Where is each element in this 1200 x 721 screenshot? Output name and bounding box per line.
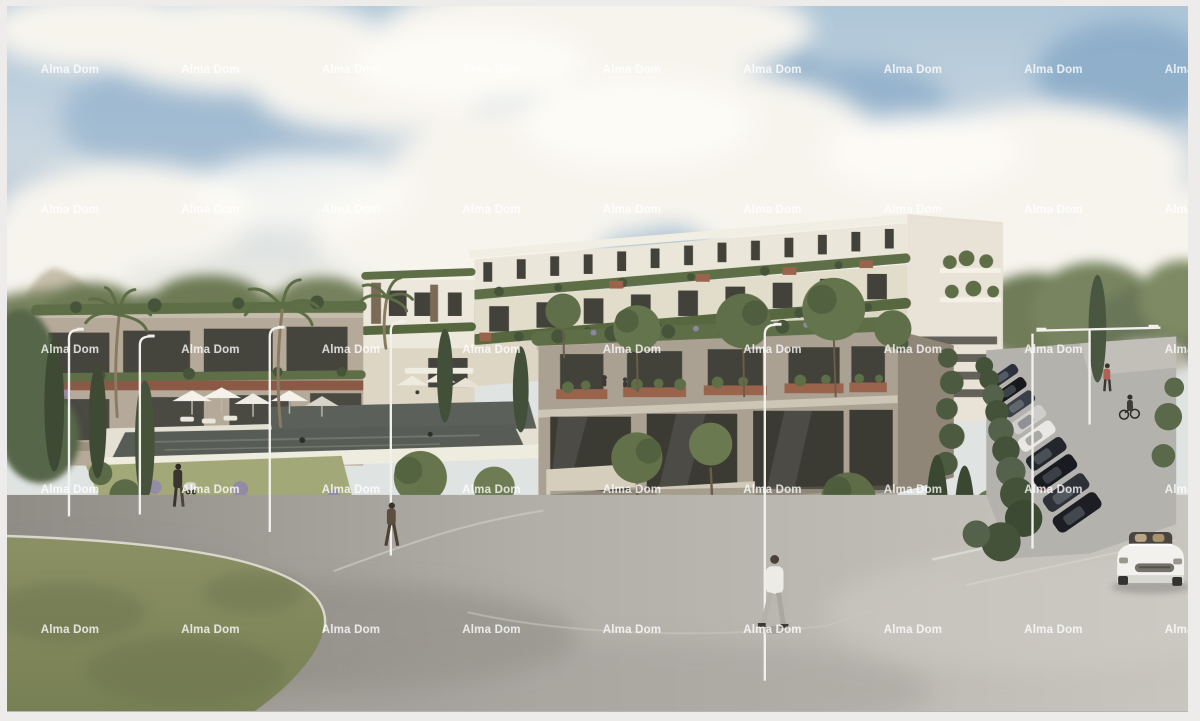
architectural-rendering-photo: Alma DomAlma DomAlma DomAlma DomAlma Dom… (7, 6, 1188, 711)
rendering-scene (7, 6, 1188, 711)
image-viewer-canvas: Alma DomAlma DomAlma DomAlma DomAlma Dom… (0, 0, 1200, 721)
